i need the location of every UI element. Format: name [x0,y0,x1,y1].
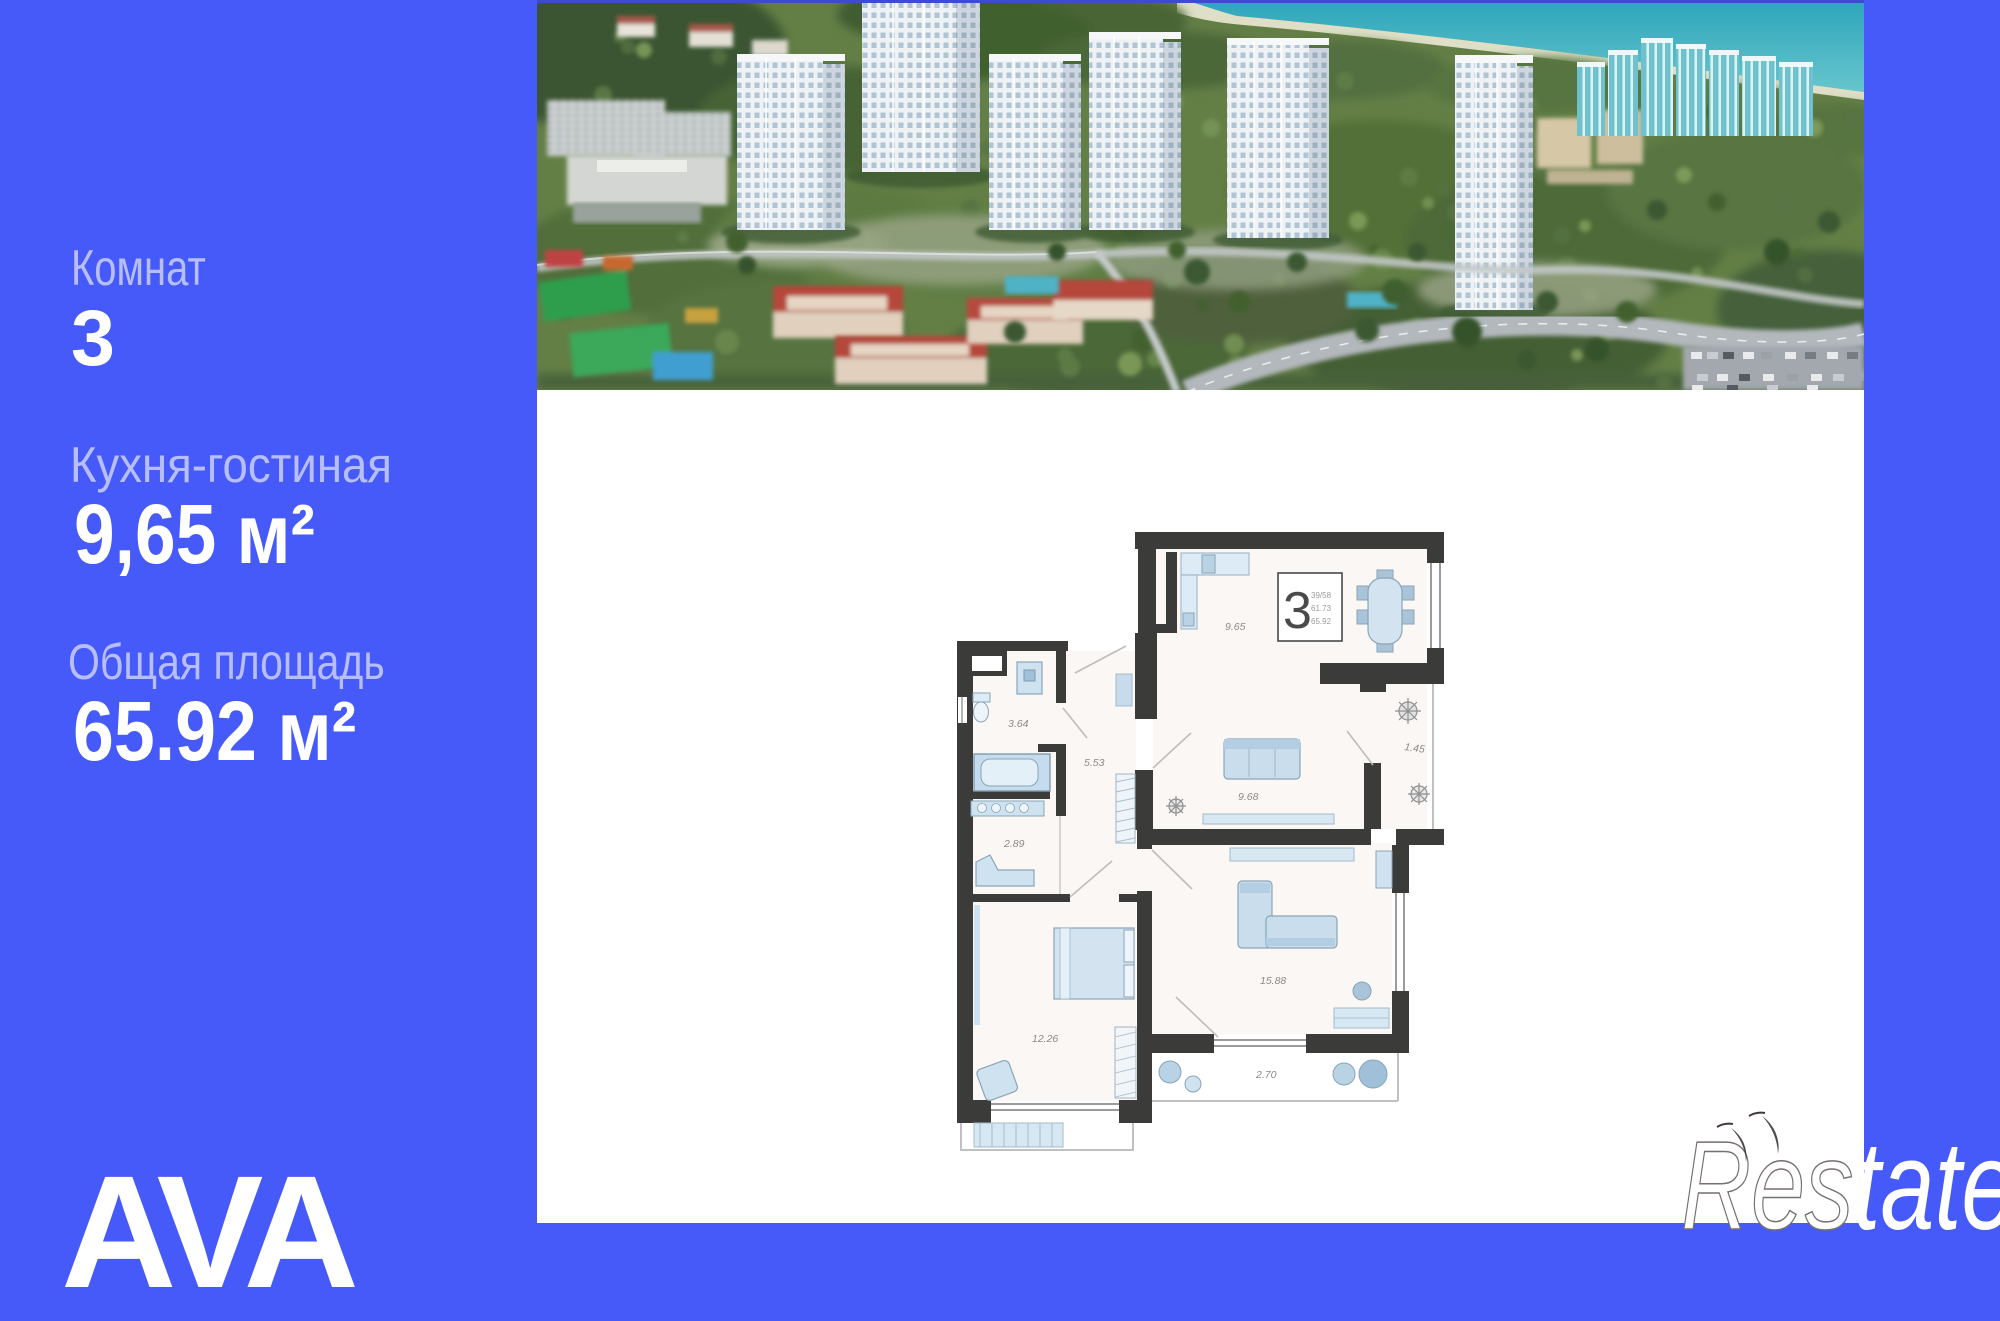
svg-text:2.89: 2.89 [1003,838,1025,850]
svg-text:3: 3 [1283,582,1312,640]
svg-text:5.53: 5.53 [1084,757,1105,769]
svg-text:12.26: 12.26 [1032,1033,1058,1045]
svg-text:65.92: 65.92 [1311,617,1332,626]
svg-text:2.70: 2.70 [1255,1069,1277,1081]
svg-text:15.88: 15.88 [1260,975,1286,987]
svg-text:3.64: 3.64 [1008,718,1029,730]
svg-text:39/58: 39/58 [1311,591,1332,600]
svg-text:9.65: 9.65 [1225,621,1246,633]
svg-text:9.68: 9.68 [1238,791,1259,803]
svg-text:61.73: 61.73 [1311,604,1332,613]
